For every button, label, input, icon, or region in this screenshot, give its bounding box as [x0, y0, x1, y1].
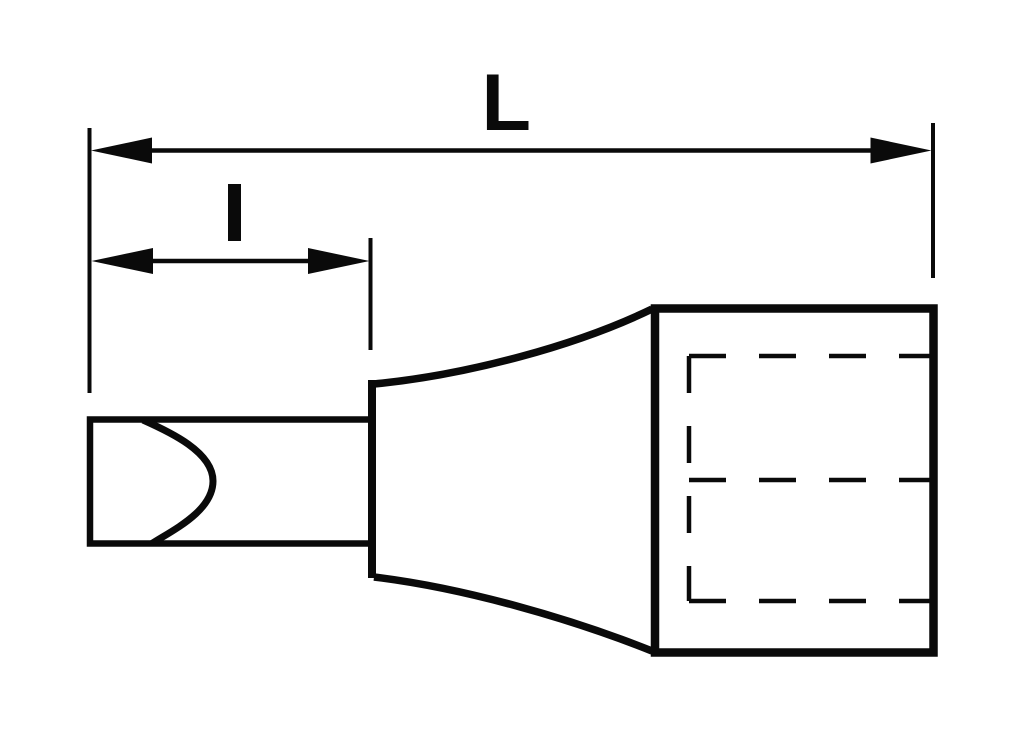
svg-text:L: L — [482, 58, 531, 148]
